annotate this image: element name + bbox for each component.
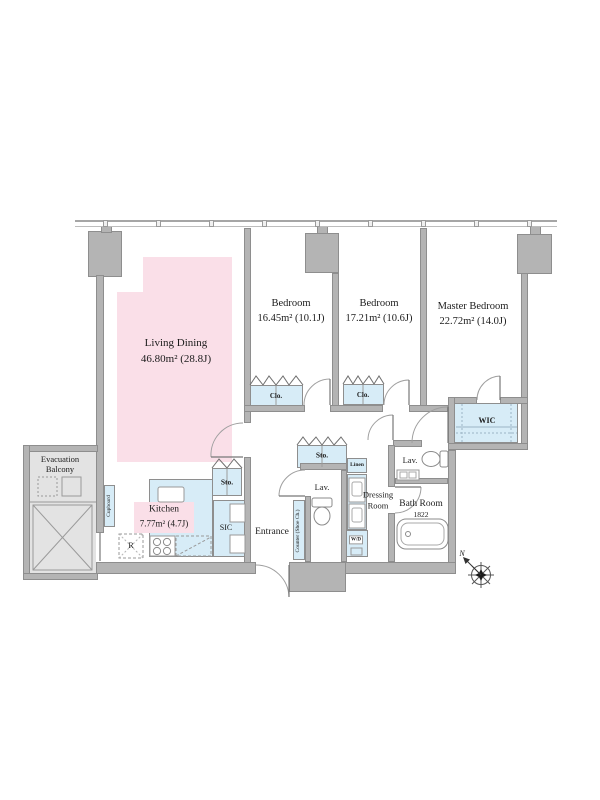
door-arc-bedroom1 [304, 379, 330, 405]
room-area: 16.45m² (10.1J) [257, 311, 324, 326]
wall-wc-left [305, 496, 311, 562]
label-compass-north: N [459, 548, 464, 560]
wall-ld-bed1 [244, 228, 251, 423]
label-cupboard: Cupboard [106, 495, 114, 517]
balcony-rail-post [368, 220, 373, 227]
balcony-wall-bottom [23, 573, 98, 580]
room-name: Bath Room [399, 499, 443, 510]
balcony-wall-left [23, 445, 30, 580]
wall [530, 226, 541, 235]
balcony-rail-post [262, 220, 267, 227]
room-name: Dressing [363, 489, 393, 500]
room-label-kitchen: Kitchen 7.77m² (4.7J) [140, 504, 188, 531]
door-arc-bedroom2 [384, 380, 409, 405]
compass-icon [463, 557, 494, 588]
room-name: Bedroom [345, 296, 412, 311]
wall-bottom-left [96, 562, 256, 574]
balcony-rail-post [103, 220, 108, 227]
wall-bed1-bed2 [332, 273, 339, 412]
wall-wc-right [341, 470, 347, 562]
label-washer-dryer: W/D [349, 535, 363, 544]
wall-bath-right [448, 450, 456, 568]
living-dining-fill [117, 292, 232, 462]
room-name: Bedroom [257, 296, 324, 311]
floor-plan: Living Dining 46.80m² (28.8J) Bedroom 16… [0, 0, 600, 800]
balcony-rail-post [474, 220, 479, 227]
room-label-entrance: Entrance [255, 526, 289, 540]
wall-bed2-master [420, 228, 427, 412]
wall [101, 226, 112, 233]
wall-corridor-top-3 [409, 405, 448, 412]
room-name: Master Bedroom [438, 299, 509, 314]
toilet-icon-wc [312, 498, 332, 525]
room-name: Balcony [41, 464, 79, 474]
room-name: Evacuation [41, 454, 79, 464]
label-wic: WIC [479, 415, 496, 427]
wall-left [96, 275, 104, 533]
room-label-bath: Bath Room 1822 [399, 499, 443, 519]
room-area: 46.80m² (28.8J) [141, 352, 211, 368]
wall-wic-top-2 [500, 397, 528, 404]
column [88, 231, 122, 277]
balcony-rail-post [315, 220, 320, 227]
room-label-bedroom1: Bedroom 16.45m² (10.1J) [257, 296, 324, 326]
room-label-bedroom2: Bedroom 17.21m² (10.6J) [345, 296, 412, 326]
balcony-rail-post [421, 220, 426, 227]
wall-corridor-bottom [393, 440, 422, 447]
label-lav-powder: Lav. [403, 454, 418, 466]
label-lav-wc: Lav. [315, 481, 330, 493]
label-clo-2: Clo. [357, 390, 369, 400]
label-sto-hall: Sto. [316, 451, 328, 462]
balcony-rail-post [156, 220, 161, 227]
balcony-rail-post [209, 220, 214, 227]
bathtub-icon [397, 519, 448, 549]
label-linen: Linen [350, 462, 364, 470]
door-arc-master-suite [412, 407, 448, 443]
wall [317, 226, 328, 234]
room-area: 17.21m² (10.6J) [345, 311, 412, 326]
balcony-wall-top [23, 445, 98, 452]
bath-size: 1822 [399, 510, 443, 519]
label-refrigerator: R [128, 540, 133, 552]
wall-lav-bath [395, 478, 448, 484]
door-arc-entrance [256, 565, 289, 597]
balcony-rail-post [527, 220, 532, 227]
door-arc-wic [477, 376, 500, 400]
room-name: Living Dining [141, 336, 211, 352]
wall-bath-left-2 [388, 513, 395, 562]
wall-corridor-top-2 [330, 405, 383, 412]
room-label-dressing: Dressing Room [363, 489, 393, 510]
door-arc-wc [279, 470, 305, 496]
wall-ld-bed1-lower [244, 457, 251, 564]
wall-corridor-top-1 [244, 405, 305, 412]
room-area: 22.72m² (14.0J) [438, 314, 509, 329]
room-label-evacuation-balcony: Evacuation Balcony [41, 454, 79, 474]
room-label-living-dining: Living Dining 46.80m² (28.8J) [141, 336, 211, 368]
column [305, 233, 339, 273]
room-name: Room [363, 500, 393, 511]
label-sic: SIC [220, 522, 232, 534]
living-dining-fill-top [143, 257, 232, 293]
label-shoe-counter: Counter (Shoe Ch.) [295, 510, 303, 553]
wall-wic-bottom [448, 443, 528, 450]
column [517, 234, 552, 274]
room-area: 7.77m² (4.7J) [140, 517, 188, 530]
door-arc-dressing [368, 415, 393, 440]
label-sto-kitchen: Sto. [221, 478, 233, 489]
label-clo-1: Clo. [270, 391, 282, 401]
wall-right [521, 273, 528, 450]
wall-bath-left-1 [388, 445, 395, 487]
room-label-master-bedroom: Master Bedroom 22.72m² (14.0J) [438, 299, 509, 329]
room-name: Kitchen [140, 504, 188, 518]
porch-block [289, 562, 346, 592]
wall-wc-top [300, 463, 347, 470]
